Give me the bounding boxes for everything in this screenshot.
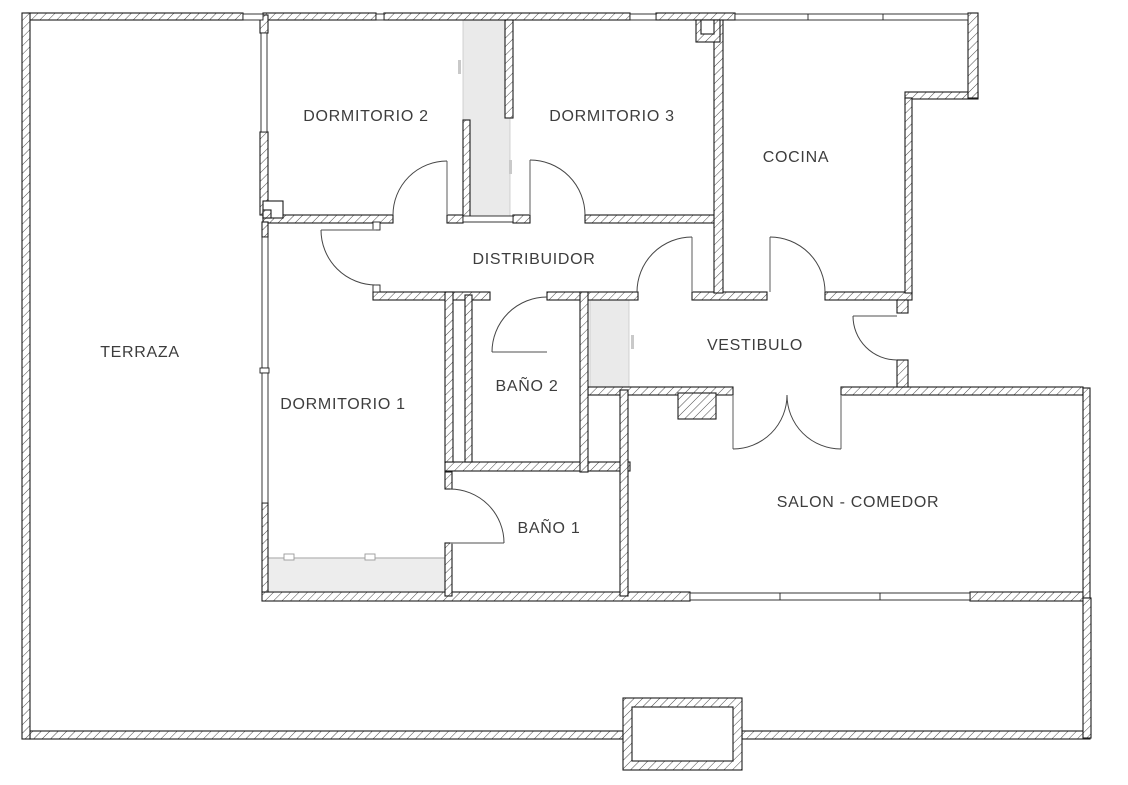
room-label-cocina: COCINA bbox=[763, 149, 829, 166]
room-label-distribuidor: DISTRIBUIDOR bbox=[472, 251, 595, 268]
door-dormitorio-2 bbox=[393, 161, 447, 215]
room-label-vestibulo: VESTIBULO bbox=[707, 337, 803, 354]
double-door-salon-left bbox=[733, 395, 787, 449]
room-label-dormitorio2: DORMITORIO 2 bbox=[303, 108, 428, 125]
door-dormitorio-3 bbox=[530, 160, 585, 215]
door-distribuidor-vestibulo bbox=[637, 237, 692, 292]
floor-plan-canvas: TERRAZA DORMITORIO 2 DORMITORIO 3 COCINA… bbox=[0, 0, 1128, 785]
room-label-bano1: BAÑO 1 bbox=[518, 517, 581, 537]
door-cocina bbox=[770, 237, 825, 292]
room-labels: TERRAZA DORMITORIO 2 DORMITORIO 3 COCINA… bbox=[100, 108, 939, 537]
door-bano-2 bbox=[492, 297, 547, 352]
column-vestibulo-salon bbox=[678, 393, 716, 419]
room-label-dormitorio1: DORMITORIO 1 bbox=[280, 396, 405, 413]
door-dormitorio-1 bbox=[321, 230, 376, 285]
door-bano-1 bbox=[450, 489, 504, 543]
floor-plan-page: TERRAZA DORMITORIO 2 DORMITORIO 3 COCINA… bbox=[0, 0, 1128, 785]
shaft-next-to-vestibulo bbox=[590, 300, 629, 387]
double-door-salon-right bbox=[787, 395, 841, 449]
duct-top-cocina bbox=[696, 20, 720, 42]
entry-door-vestibulo bbox=[853, 316, 897, 360]
room-label-terraza: TERRAZA bbox=[100, 344, 180, 361]
room-label-salon: SALON - COMEDOR bbox=[777, 494, 940, 511]
room-label-bano2: BAÑO 2 bbox=[496, 375, 559, 395]
room-label-dormitorio3: DORMITORIO 3 bbox=[549, 108, 674, 125]
bottom-terrace-box bbox=[623, 698, 742, 770]
wardrobe-dormitorio1 bbox=[268, 554, 445, 591]
corner-pillar-dormitorio2 bbox=[263, 201, 283, 218]
